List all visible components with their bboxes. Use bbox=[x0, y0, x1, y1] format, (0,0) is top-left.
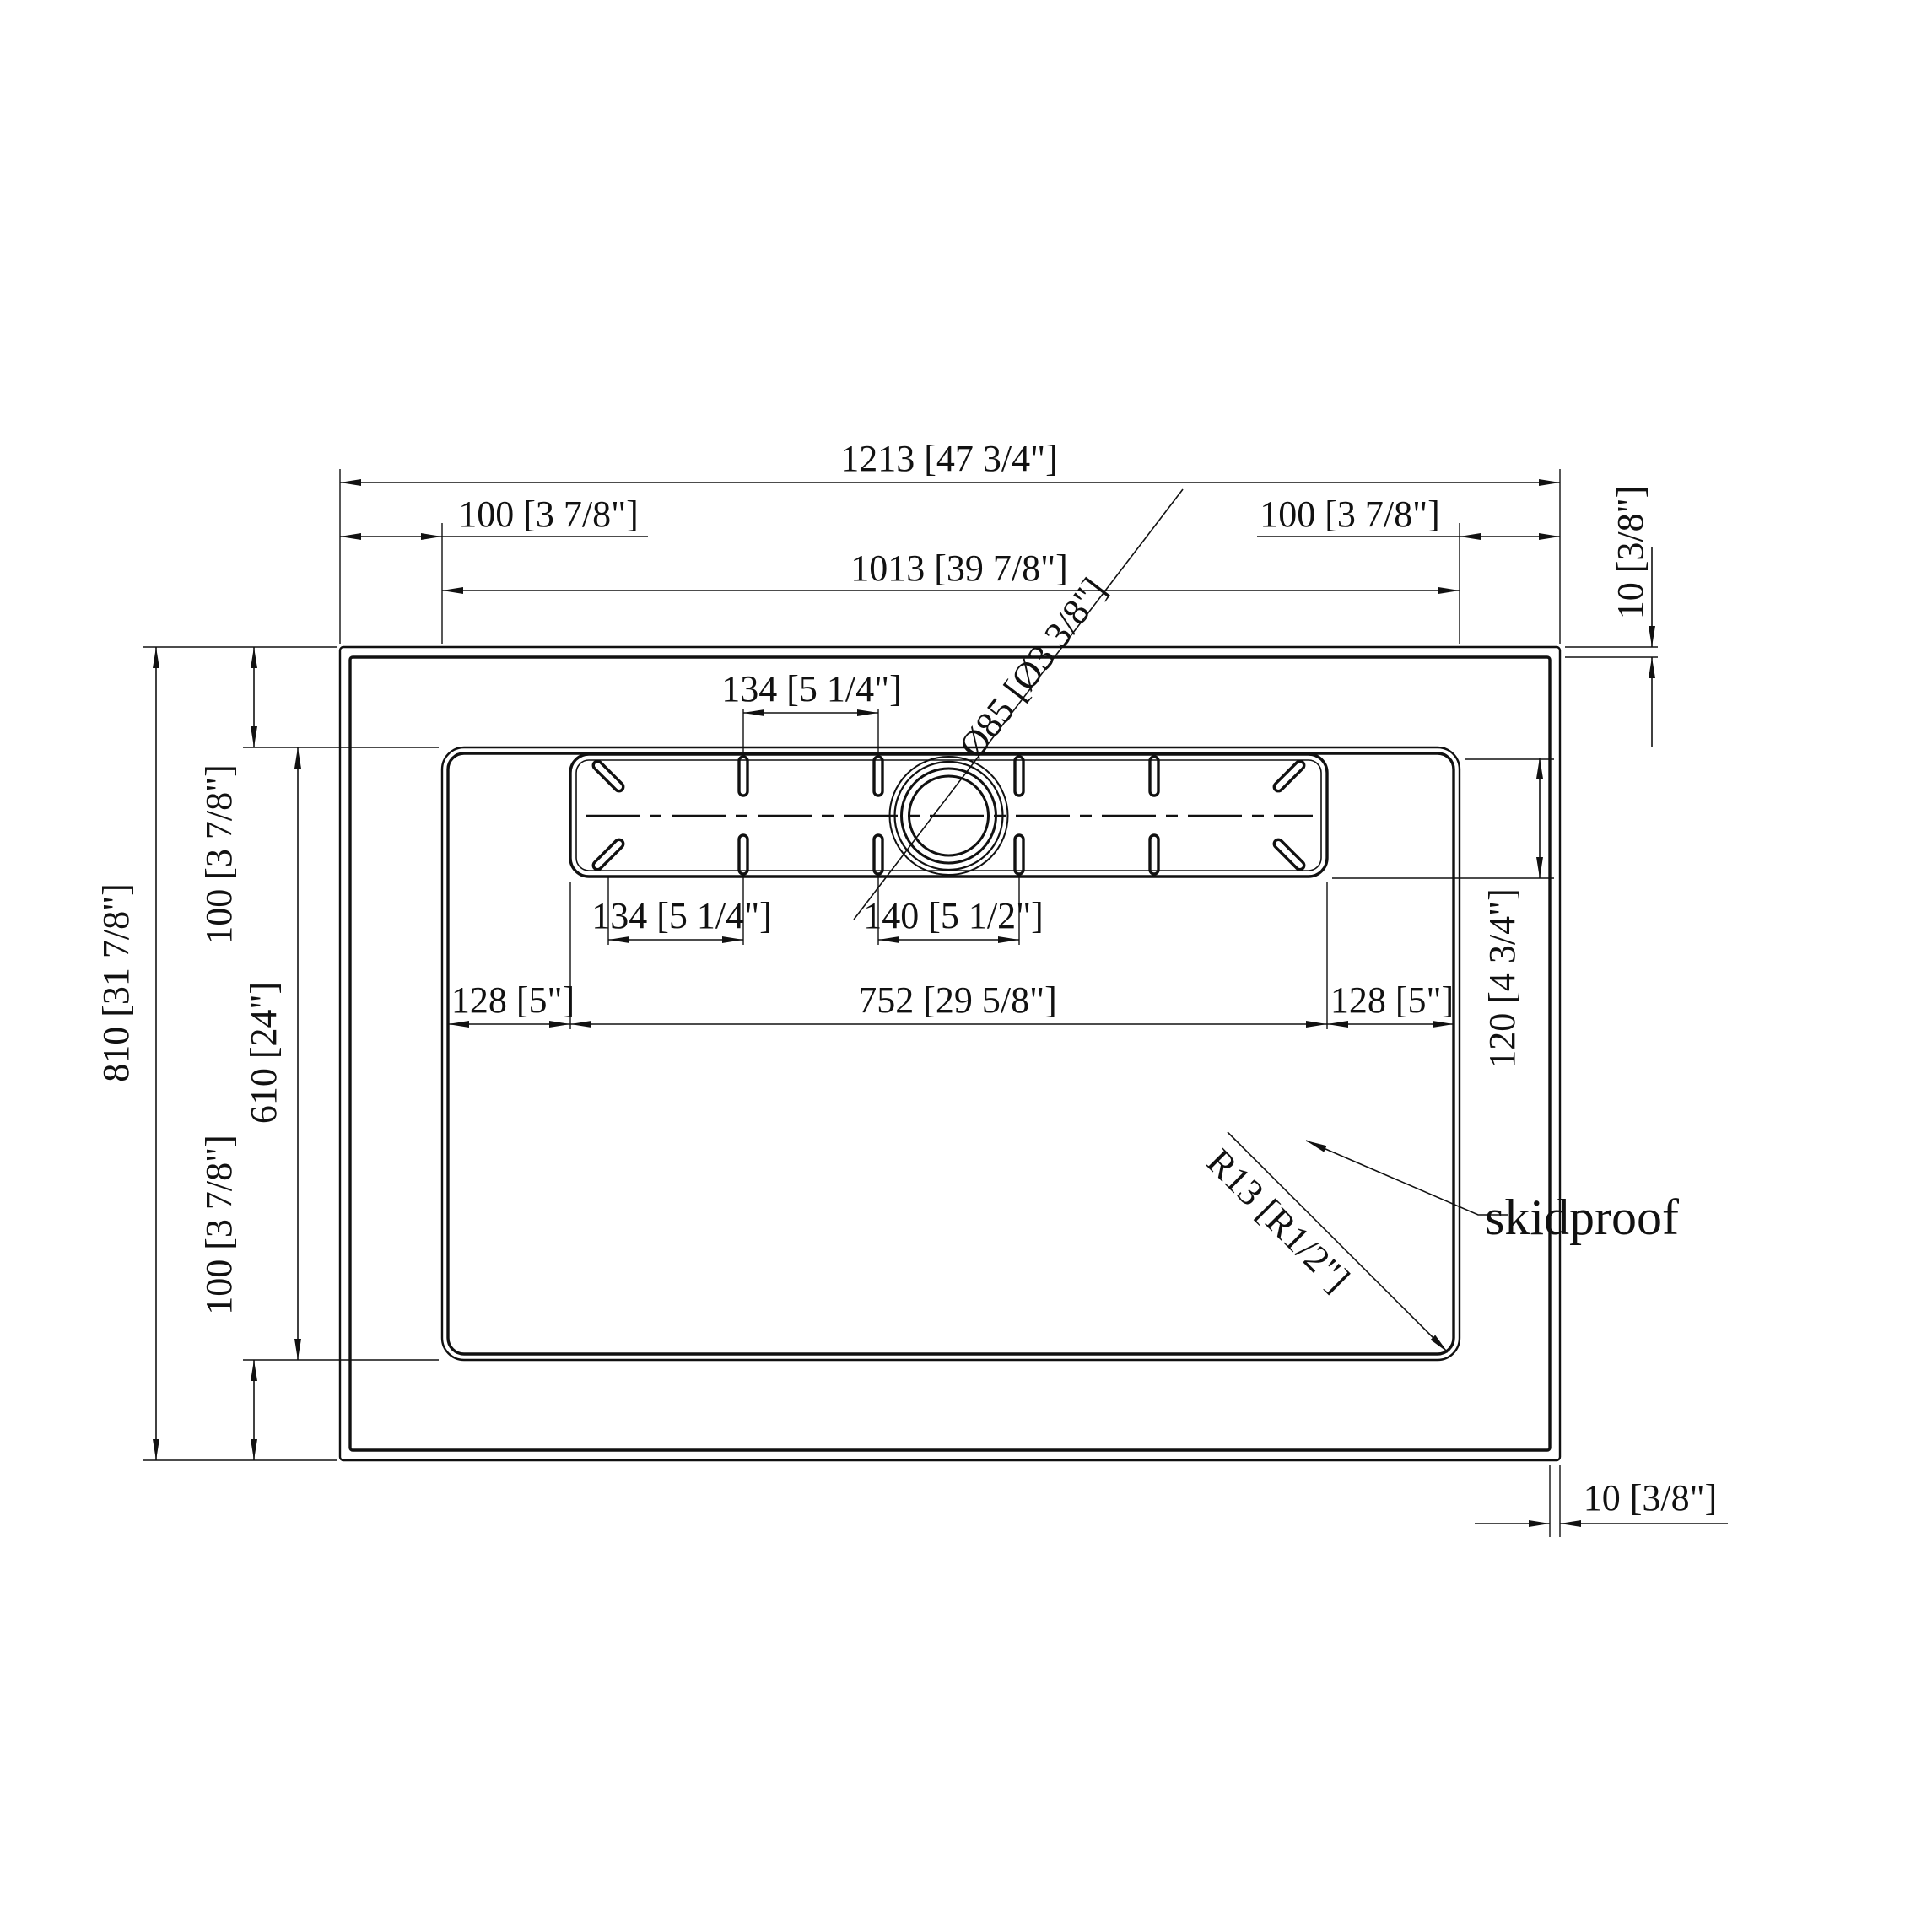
dim-ledge-left-upper: 100 [3 7/8"] bbox=[198, 764, 240, 945]
shower-base-technical-drawing: 1213 [47 3/4"] 100 [3 7/8"] 100 [3 7/8"]… bbox=[0, 0, 1932, 1931]
dim-drain-diameter: Ø85 [Ø3 3/8"] bbox=[951, 570, 1114, 766]
drain-slot bbox=[874, 757, 882, 796]
dim-ledge-top-right: 100 [3 7/8"] bbox=[1260, 494, 1440, 535]
drain-slot bbox=[1150, 757, 1158, 796]
drawing-sheet: 1213 [47 3/4"] 100 [3 7/8"] 100 [3 7/8"]… bbox=[0, 0, 1932, 1931]
dim-slot-pitch-top: 134 [5 1/4"] bbox=[721, 668, 902, 709]
drain-slot-diagonal bbox=[1272, 838, 1306, 871]
dim-ledge-left-lower: 100 [3 7/8"] bbox=[198, 1135, 240, 1315]
note-skidproof: skidproof bbox=[1485, 1189, 1679, 1245]
dim-strip-offset-right: 128 [5"] bbox=[1330, 979, 1454, 1021]
drain-slot-diagonal bbox=[1272, 759, 1306, 793]
dim-edge-thickness-bottom-right: 10 [3/8"] bbox=[1584, 1477, 1718, 1518]
drain-slot-diagonal bbox=[591, 838, 625, 871]
dimension-texts: 1213 [47 3/4"] 100 [3 7/8"] 100 [3 7/8"]… bbox=[95, 438, 1717, 1518]
drain-slot bbox=[874, 835, 882, 874]
dim-strip-length: 752 [29 5/8"] bbox=[858, 979, 1057, 1021]
drain-slot bbox=[1150, 835, 1158, 874]
dim-inner-depth: 610 [24"] bbox=[243, 982, 284, 1124]
dim-strip-depth: 120 [4 3/4"] bbox=[1481, 888, 1523, 1069]
drain-slot-diagonal bbox=[591, 759, 625, 793]
dim-ledge-top-left: 100 [3 7/8"] bbox=[458, 494, 639, 535]
dim-edge-thickness-top-right: 10 [3/8"] bbox=[1610, 486, 1651, 620]
dim-inner-width: 1013 [39 7/8"] bbox=[850, 547, 1068, 589]
dim-slot-pitch-bottom: 134 [5 1/4"] bbox=[591, 895, 772, 936]
drain-strip bbox=[570, 754, 1327, 877]
dim-strip-offset-left: 128 [5"] bbox=[451, 979, 575, 1021]
drain-slot bbox=[1015, 757, 1023, 796]
dim-overall-width: 1213 [47 3/4"] bbox=[840, 438, 1058, 479]
dim-corner-radius: R13 [R1/2"] bbox=[1199, 1141, 1357, 1299]
dim-overall-depth: 810 [31 7/8"] bbox=[95, 883, 137, 1082]
leader-skidproof bbox=[1306, 1141, 1508, 1215]
drain-slot bbox=[1015, 835, 1023, 874]
drain-slot bbox=[739, 757, 747, 796]
leader-corner-radius bbox=[1228, 1132, 1448, 1352]
dim-drain-slot-pitch: 140 [5 1/2"] bbox=[863, 895, 1044, 936]
drain-slot bbox=[739, 835, 747, 874]
